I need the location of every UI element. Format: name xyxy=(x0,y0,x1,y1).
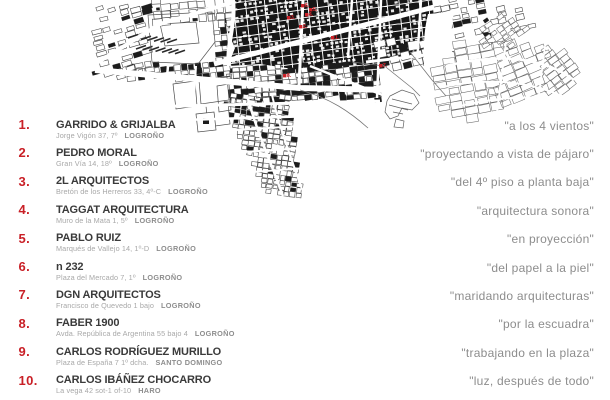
svg-text:8.: 8. xyxy=(287,73,292,79)
svg-text:1.: 1. xyxy=(335,35,340,41)
svg-text:5.: 5. xyxy=(313,7,318,13)
svg-text:3.: 3. xyxy=(291,15,296,21)
svg-text:7.: 7. xyxy=(383,63,388,69)
svg-text:4.: 4. xyxy=(309,12,314,18)
svg-text:2.: 2. xyxy=(303,24,308,30)
